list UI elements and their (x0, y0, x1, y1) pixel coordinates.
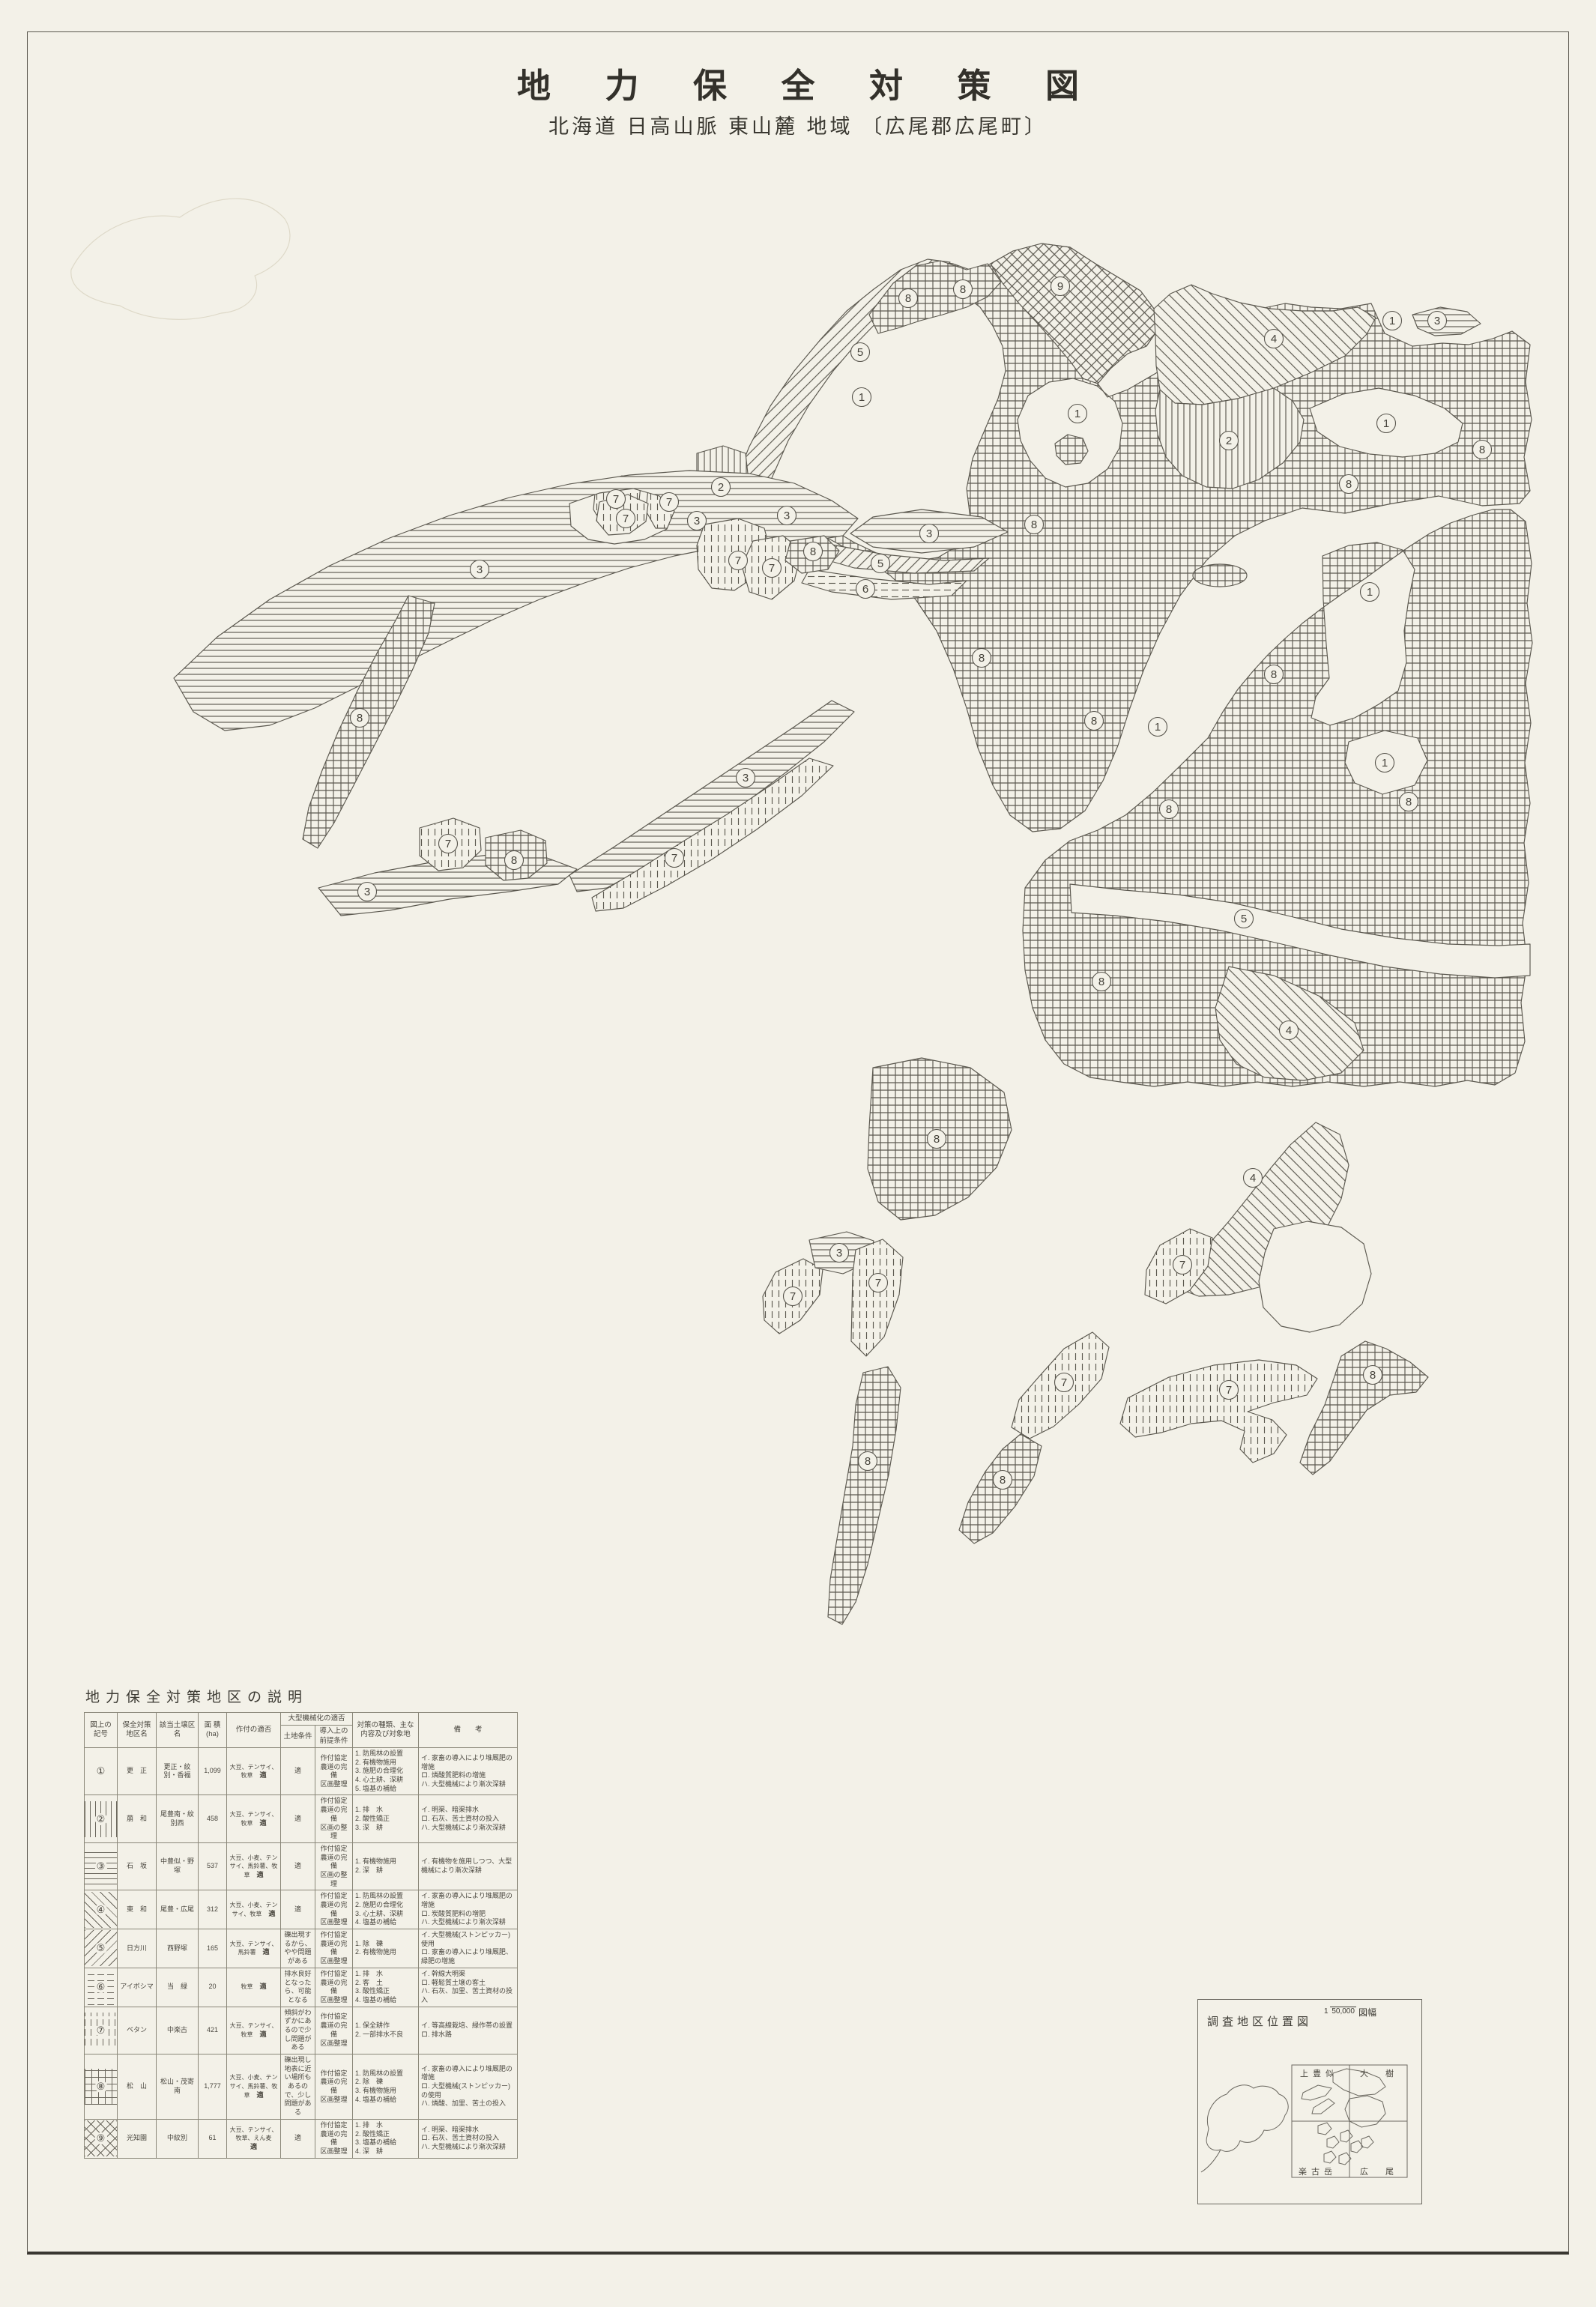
legend-soil-name: 中紋別 (157, 2119, 199, 2158)
svg-text:5: 5 (857, 346, 863, 359)
scanned-map-page: 地 力 保 全 対 策 図 北海道 日高山脈 東山麓 地域 〔広尾郡広尾町〕 (0, 0, 1596, 2307)
legend-table: 図上の記号 保全対策地区名 該当土壌区名 面 積(ha) 作付の適否 大型機械化… (84, 1712, 518, 2159)
legend-remarks: イ. 家畜の導入により堆厩肥の増施 ロ. 燐酸質肥料の増施 ハ. 大型機械により… (419, 1748, 518, 1795)
map-region-number-7: 7 (729, 551, 748, 570)
legend-row: ⑨光知園中紋別61大豆、テンサイ、牧草、えん麦 適適作付協定 農道の完備 区画整… (85, 2119, 518, 2158)
legend-soil-name: 当 緑 (157, 1968, 199, 2007)
map-region-number-2: 2 (712, 478, 731, 497)
map-region-3-left-arm (174, 471, 858, 731)
map-island-7-cluster-right (851, 1239, 903, 1356)
map-region-number-5: 5 (1235, 910, 1254, 928)
map-region-number-8: 8 (1400, 793, 1418, 811)
map-region-number-8: 8 (859, 1452, 877, 1471)
map-region-number-3: 3 (830, 1244, 849, 1263)
map-region-number-7: 7 (784, 1287, 802, 1306)
svg-text:8: 8 (905, 292, 911, 305)
legend-row: ⑧松 山松山・茂寄南1,777大豆、小麦、テンサイ、馬鈴薯、牧草 適礫出現し地表… (85, 2054, 518, 2120)
header-crops: 作付の適否 (227, 1713, 281, 1748)
map-islet-in-curl (1055, 435, 1088, 465)
legend-symbol-swatch: ④ (85, 1890, 118, 1929)
legend-remarks: イ. 明渠、暗渠排水 ロ. 石灰、苦土資材の投入 ハ. 大型機械により漸次深耕 (419, 2119, 518, 2158)
map-region-number-3: 3 (778, 507, 797, 525)
legend-symbol-swatch: ③ (85, 1842, 118, 1890)
legend-land-condition: 適 (281, 2119, 315, 2158)
svg-text:8: 8 (357, 712, 363, 725)
map-region-number-7: 7 (607, 490, 626, 509)
location-map-box: 調査地区位置図 1 50,000 図幅 上豊似 大 樹 楽古岳 広 尾 (1197, 1999, 1422, 2204)
legend-soil-name: 更正・紋別・香福 (157, 1748, 199, 1795)
svg-text:1: 1 (1382, 757, 1388, 769)
legend-precondition: 作付協定 農道の完備 区画整理 (315, 2007, 353, 2054)
svg-text:2: 2 (718, 481, 724, 494)
svg-text:9: 9 (1057, 280, 1063, 293)
map-region-number-3: 3 (358, 883, 377, 901)
header-symbol: 図上の記号 (85, 1713, 118, 1748)
legend-land-condition: 適 (281, 1842, 315, 1890)
legend-crops: 大豆、小麦、テンサイ、馬鈴薯、牧草 適 (227, 2054, 281, 2120)
map-region-number-7: 7 (617, 510, 635, 528)
svg-text:8: 8 (1098, 976, 1104, 988)
legend-measures: 1. 有機物施用 2. 深 耕 (353, 1842, 419, 1890)
map-region-number-8: 8 (1364, 1366, 1382, 1385)
map-region-3-diagonal-strip (569, 701, 854, 892)
map-region-number-1: 1 (1361, 583, 1379, 602)
legend-crops: 牧草 適 (227, 1968, 281, 2007)
svg-text:5: 5 (877, 557, 883, 570)
legend-district-name: 萠 和 (118, 1795, 157, 1842)
legend-row: ⑤日方川西野塚165大豆、テンサイ、馬鈴薯 適礫出現するから、やや問題がある作付… (85, 1929, 518, 1968)
hokkaido-outline (1201, 2085, 1288, 2172)
svg-text:3: 3 (364, 886, 370, 898)
map-region-number-7: 7 (763, 559, 782, 578)
svg-text:8: 8 (979, 652, 985, 665)
location-map-scale: 1 50,000 図幅 (1324, 2006, 1376, 2019)
svg-text:3: 3 (694, 515, 700, 527)
map-island-7-s-shape (1120, 1360, 1317, 1463)
legend-precondition: 作付協定 農道の完備 区画整理 (315, 1968, 353, 2007)
map-region-number-1: 1 (853, 388, 871, 407)
legend-land-condition: 適 (281, 1795, 315, 1842)
svg-text:8: 8 (1091, 715, 1097, 728)
legend-crops: 大豆、テンサイ、牧草 適 (227, 2007, 281, 2054)
legend-measures: 1. 排 水 2. 酸性矯正 3. 深 耕 (353, 1795, 419, 1842)
legend-remarks: イ. 有機物を施用しつつ、大型機械により漸次深耕 (419, 1842, 518, 1890)
map-region-number-8: 8 (804, 542, 823, 561)
svg-text:1: 1 (1389, 315, 1395, 327)
legend-crops: 大豆、テンサイ、牧草 適 (227, 1748, 281, 1795)
header-mech-group: 大型機械化の適否 (281, 1713, 353, 1726)
map-region-number-8: 8 (899, 289, 918, 308)
map-region-number-7: 7 (1173, 1256, 1192, 1275)
svg-text:8: 8 (934, 1133, 940, 1146)
svg-text:7: 7 (623, 513, 629, 525)
map-region-number-7: 7 (439, 835, 458, 853)
svg-text:5: 5 (1241, 913, 1247, 925)
map-region-number-8: 8 (994, 1471, 1012, 1490)
legend-row: ④東 和尾豊・広尾312大豆、小麦、テンサイ、牧草 適適作付協定 農道の完備 区… (85, 1890, 518, 1929)
sheet-label-kamitoyoni: 上豊似 (1300, 2067, 1338, 2079)
legend-symbol-swatch: ⑤ (85, 1929, 118, 1968)
svg-text:8: 8 (1271, 668, 1277, 681)
svg-text:1: 1 (1155, 721, 1161, 734)
svg-text:8: 8 (1031, 518, 1037, 531)
sheet-label-hiroo: 広 尾 (1360, 2165, 1398, 2177)
legend-district-name: 石 坂 (118, 1842, 157, 1890)
map-region-number-5: 5 (871, 554, 890, 573)
legend-district-name: ベタン (118, 2007, 157, 2054)
legend-precondition: 作付協定 農道の完備 区画整理 (315, 1890, 353, 1929)
legend-land-condition: 適 (281, 1890, 315, 1929)
svg-text:8: 8 (865, 1455, 871, 1468)
map-region-number-8: 8 (954, 280, 973, 299)
faint-sketch-outline (71, 199, 290, 319)
legend-row: ③石 坂中豊似・野塚537大豆、小麦、テンサイ、馬鈴薯、牧草 適適作付協定 農道… (85, 1842, 518, 1890)
legend-remarks: イ. 等高線栽培、緑作帯の設置 ロ. 排水路 (419, 2007, 518, 2054)
svg-text:8: 8 (1166, 803, 1172, 816)
legend-row: ⑦ベタン中楽古421大豆、テンサイ、牧草 適傾斜がわずかにあるので少し問題がある… (85, 2007, 518, 2054)
map-region-number-1: 1 (1377, 414, 1396, 433)
legend-measures: 1. 防風林の設置 2. 除 礫 3. 有機物施用 4. 塩基の補給 (353, 2054, 419, 2120)
legend-area: 20 (199, 1968, 227, 2007)
svg-text:3: 3 (477, 563, 483, 576)
map-region-number-8: 8 (1473, 441, 1492, 459)
map-region-number-1: 1 (1383, 312, 1402, 330)
legend-land-condition: 礫出現し地表に近い場所もあるので、少し問題がある (281, 2054, 315, 2120)
svg-text:3: 3 (836, 1247, 842, 1260)
scale-suffix: 図幅 (1358, 2006, 1376, 2019)
map-region-number-3: 3 (737, 769, 755, 787)
legend-precondition: 作付協定 農道の完備 区画の整理 (315, 1842, 353, 1890)
legend-soil-name: 尾豊・広尾 (157, 1890, 199, 1929)
map-region-number-2: 2 (1220, 432, 1239, 450)
legend-land-condition: 排水良好となったら、可能となる (281, 1968, 315, 2007)
svg-text:7: 7 (445, 838, 451, 850)
svg-text:7: 7 (1226, 1384, 1232, 1397)
svg-text:3: 3 (743, 772, 749, 784)
legend-measures: 1. 排 水 2. 酸性矯正 3. 塩基の補給 4. 深 耕 (353, 2119, 419, 2158)
legend-row: ⑥アイボシマ当 緑20牧草 適排水良好となったら、可能となる作付協定 農道の完備… (85, 1968, 518, 2007)
legend-land-condition: 礫出現するから、やや問題がある (281, 1929, 315, 1968)
sheet-label-taiki: 大 樹 (1360, 2067, 1398, 2079)
legend-measures: 1. 防風林の設置 2. 有機物施用 3. 施肥の合理化 4. 心土耕、深耕 5… (353, 1748, 419, 1795)
svg-text:1: 1 (859, 391, 865, 404)
legend-land-condition: 傾斜がわずかにあるので少し問題がある (281, 2007, 315, 2054)
map-region-number-8: 8 (1092, 973, 1111, 991)
svg-text:4: 4 (1250, 1172, 1256, 1185)
sheet-label-rakkodake: 楽古岳 (1299, 2165, 1337, 2177)
svg-text:7: 7 (1179, 1259, 1185, 1272)
legend-soil-name: 尾豊南・紋別西 (157, 1795, 199, 1842)
legend-precondition: 作付協定 農道の完備 区画整理 (315, 1748, 353, 1795)
legend-crops: 大豆、小麦、テンサイ、馬鈴薯、牧草 適 (227, 1842, 281, 1890)
svg-text:7: 7 (875, 1277, 881, 1289)
map-island-8-right (1300, 1341, 1428, 1475)
legend-crops: 大豆、小麦、テンサイ、牧草 適 (227, 1890, 281, 1929)
legend-precondition: 作付協定 農道の完備 区画整理 (315, 1929, 353, 1968)
svg-text:8: 8 (1406, 796, 1412, 808)
svg-text:3: 3 (784, 510, 790, 522)
legend-area: 537 (199, 1842, 227, 1890)
legend-area: 458 (199, 1795, 227, 1842)
svg-text:8: 8 (1479, 444, 1485, 456)
map-region-number-3: 3 (471, 560, 489, 579)
legend-symbol-swatch: ① (85, 1748, 118, 1795)
legend-remarks: イ. 大型機械(ストンピッカー)使用 ロ. 家畜の導入により堆厩肥、緑肥の増施 (419, 1929, 518, 1968)
legend-measures: 1. 排 水 2. 客 土 3. 酸性矯正 4. 塩基の補給 (353, 1968, 419, 2007)
location-map-title: 調査地区位置図 (1207, 2013, 1312, 2029)
legend-precondition: 作付協定 農道の完備 区画整理 (315, 2119, 353, 2158)
svg-text:8: 8 (1370, 1369, 1376, 1382)
svg-text:6: 6 (862, 583, 868, 596)
map-region-number-6: 6 (856, 580, 875, 599)
map-region-number-4: 4 (1265, 330, 1284, 348)
map-region-number-7: 7 (660, 493, 679, 512)
map-region-number-9: 9 (1051, 277, 1070, 296)
svg-text:7: 7 (1061, 1376, 1067, 1389)
legend-area: 165 (199, 1929, 227, 1968)
svg-text:7: 7 (735, 554, 741, 567)
svg-text:7: 7 (790, 1290, 796, 1303)
legend-precondition: 作付協定 農道の完備 区画整理 (315, 2054, 353, 2120)
svg-text:1: 1 (1383, 417, 1389, 430)
scale-fraction: 1 50,000 (1324, 2008, 1356, 2016)
legend-symbol-swatch: ② (85, 1795, 118, 1842)
legend-district-name: アイボシマ (118, 1968, 157, 2007)
legend-remarks: イ. 家畜の導入により堆厩肥の増施 ロ. 大型機械(ストンピッカー)の使用 ハ.… (419, 2054, 518, 2120)
legend-measures: 1. 除 礫 2. 有機物施用 (353, 1929, 419, 1968)
legend-soil-name: 西野塚 (157, 1929, 199, 1968)
map-region-number-8: 8 (1340, 475, 1358, 494)
map-region-number-7: 7 (1220, 1381, 1239, 1400)
scale-denominator: 50,000 (1330, 2007, 1356, 2016)
legend-area: 1,777 (199, 2054, 227, 2120)
legend-district-name: 更 正 (118, 1748, 157, 1795)
map-region-number-7: 7 (1055, 1373, 1074, 1392)
map-region-number-3: 3 (688, 512, 707, 530)
map-white-bite (1259, 1221, 1371, 1332)
svg-text:8: 8 (960, 283, 966, 296)
svg-text:8: 8 (511, 854, 517, 867)
map-region-number-7: 7 (665, 849, 684, 868)
map-region-number-8: 8 (1265, 665, 1284, 684)
map-region-number-1: 1 (1376, 754, 1394, 772)
header-remarks: 備 考 (419, 1713, 518, 1748)
svg-text:7: 7 (671, 852, 677, 865)
legend-area: 61 (199, 2119, 227, 2158)
legend-title: 地力保全対策地区の説明 (85, 1686, 517, 1706)
map-island-8-tall (828, 1367, 901, 1624)
scale-numerator: 1 (1324, 2007, 1329, 2016)
legend-remarks: イ. 幹線大明渠 ロ. 軽鬆質土壌の客土 ハ. 石灰、加里、苦土資材の投入 (419, 1968, 518, 2007)
svg-text:8: 8 (810, 545, 816, 558)
mini-map-shapes (1302, 2069, 1385, 2165)
legend-panel: 地力保全対策地区の説明 図上の記号 保全対策地区名 該当土壌区名 面 積(ha)… (84, 1686, 517, 2159)
svg-text:7: 7 (666, 496, 672, 509)
legend-row: ①更 正更正・紋別・香福1,099大豆、テンサイ、牧草 適適作付協定 農道の完備… (85, 1748, 518, 1795)
legend-district-name: 光知園 (118, 2119, 157, 2158)
header-soil: 該当土壌区名 (157, 1713, 199, 1748)
map-region-number-5: 5 (851, 343, 870, 362)
map-region-number-8: 8 (1160, 800, 1179, 819)
map-region-number-1: 1 (1149, 718, 1167, 737)
map-region-number-3: 3 (920, 524, 939, 543)
map-region-number-7: 7 (869, 1274, 888, 1292)
map-region-number-8: 8 (505, 851, 524, 870)
legend-district-name: 松 山 (118, 2054, 157, 2120)
map-region-number-4: 4 (1244, 1169, 1263, 1188)
map-region-number-1: 1 (1068, 405, 1087, 423)
legend-district-name: 東 和 (118, 1890, 157, 1929)
legend-area: 421 (199, 2007, 227, 2054)
legend-soil-name: 松山・茂寄南 (157, 2054, 199, 2120)
legend-symbol-swatch: ⑥ (85, 1968, 118, 2007)
legend-district-name: 日方川 (118, 1929, 157, 1968)
map-region-number-8: 8 (1025, 515, 1044, 534)
legend-remarks: イ. 家畜の導入により堆厩肥の増施 ロ. 炭酸質肥料の増肥 ハ. 大型機械により… (419, 1890, 518, 1929)
map-region-number-8: 8 (928, 1130, 946, 1149)
svg-text:3: 3 (926, 527, 932, 540)
legend-row: ②萠 和尾豊南・紋別西458大豆、テンサイ、牧草 適適作付協定 農道の完備 区画… (85, 1795, 518, 1842)
header-area: 面 積(ha) (199, 1713, 227, 1748)
legend-measures: 1. 保全耕作 2. 一部排水不良 (353, 2007, 419, 2054)
header-district: 保全対策地区名 (118, 1713, 157, 1748)
map-region-number-8: 8 (973, 649, 991, 668)
svg-text:1: 1 (1367, 586, 1373, 599)
map-region-number-4: 4 (1280, 1021, 1299, 1040)
svg-text:8: 8 (1000, 1474, 1006, 1487)
map-region-number-3: 3 (1428, 312, 1447, 330)
legend-soil-name: 中豊似・野塚 (157, 1842, 199, 1890)
legend-measures: 1. 防風林の設置 2. 施肥の合理化 3. 心土耕、深耕 4. 塩基の補給 (353, 1890, 419, 1929)
svg-text:2: 2 (1226, 435, 1232, 447)
map-region-number-8: 8 (351, 709, 369, 728)
legend-land-condition: 適 (281, 1748, 315, 1795)
map-region-8-top-patch (869, 261, 1001, 333)
header-land: 土地条件 (281, 1726, 315, 1748)
legend-remarks: イ. 明渠、暗渠排水 ロ. 石灰、苦土資材の投入 ハ. 大型機械により漸次深耕 (419, 1795, 518, 1842)
legend-symbol-swatch: ⑨ (85, 2119, 118, 2158)
legend-crops: 大豆、テンサイ、馬鈴薯 適 (227, 1929, 281, 1968)
legend-symbol-swatch: ⑦ (85, 2007, 118, 2054)
svg-text:7: 7 (613, 493, 619, 506)
header-precondition: 導入上の前提条件 (315, 1726, 353, 1748)
legend-crops: 大豆、テンサイ、牧草 適 (227, 1795, 281, 1842)
map-region-number-8: 8 (1085, 712, 1104, 731)
svg-text:3: 3 (1434, 315, 1440, 327)
legend-crops: 大豆、テンサイ、牧草、えん麦 適 (227, 2119, 281, 2158)
svg-text:7: 7 (769, 562, 775, 575)
legend-soil-name: 中楽古 (157, 2007, 199, 2054)
svg-text:1: 1 (1074, 408, 1080, 420)
legend-precondition: 作付協定 農道の完備 区画の整理 (315, 1795, 353, 1842)
svg-text:4: 4 (1271, 333, 1277, 345)
legend-area: 312 (199, 1890, 227, 1929)
svg-text:8: 8 (1346, 478, 1352, 491)
legend-area: 1,099 (199, 1748, 227, 1795)
legend-symbol-swatch: ⑧ (85, 2054, 118, 2120)
header-measures: 対策の種類、主な内容及び対象地 (353, 1713, 419, 1748)
svg-text:4: 4 (1286, 1024, 1292, 1037)
